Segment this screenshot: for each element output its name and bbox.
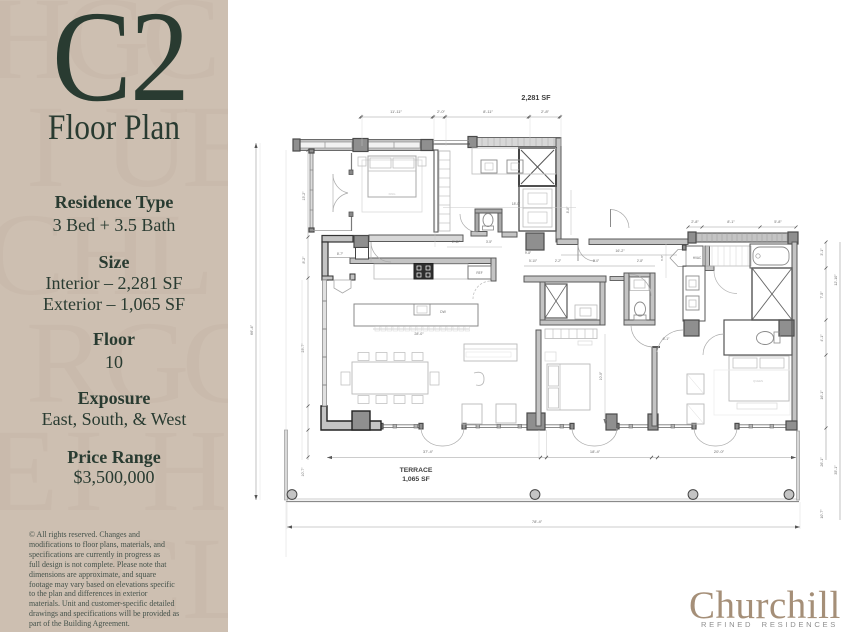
- svg-text:2′-8″: 2′-8″: [691, 220, 699, 224]
- svg-text:QUEEN: QUEEN: [753, 379, 763, 383]
- svg-text:23′-7″: 23′-7″: [301, 343, 305, 353]
- svg-text:12′-10″: 12′-10″: [834, 274, 838, 286]
- svg-text:78′-4″: 78′-4″: [532, 519, 543, 524]
- svg-text:6′-1″: 6′-1″: [663, 337, 671, 341]
- svg-text:7′-5″: 7′-5″: [820, 291, 824, 299]
- svg-text:35′-1″: 35′-1″: [834, 465, 838, 475]
- svg-text:5′-10″: 5′-10″: [529, 259, 538, 263]
- svg-text:2′-8″: 2′-8″: [541, 109, 550, 114]
- svg-text:TERRACE: TERRACE: [400, 467, 433, 474]
- svg-text:8′-11″: 8′-11″: [483, 109, 493, 114]
- svg-text:3′-1″: 3′-1″: [820, 248, 824, 256]
- svg-text:4′-1″: 4′-1″: [820, 334, 824, 342]
- svg-text:1,065 SF: 1,065 SF: [402, 476, 430, 483]
- svg-text:2,281 SF: 2,281 SF: [521, 93, 551, 102]
- svg-text:2′-0″: 2′-0″: [437, 109, 446, 114]
- svg-text:8′-7″: 8′-7″: [337, 252, 344, 256]
- svg-text:8′-1″: 8′-1″: [727, 220, 735, 224]
- svg-text:9′-8″: 9′-8″: [525, 251, 532, 255]
- svg-text:5′-8″: 5′-8″: [774, 220, 782, 224]
- svg-text:16′-2″: 16′-2″: [615, 249, 625, 253]
- svg-text:2′-2″: 2′-2″: [555, 259, 562, 263]
- svg-text:10′-9″: 10′-9″: [599, 371, 603, 380]
- svg-text:DW: DW: [440, 310, 446, 314]
- svg-text:10′-7″: 10′-7″: [301, 467, 305, 477]
- svg-text:20′-0″: 20′-0″: [714, 449, 725, 454]
- svg-text:26′-1″: 26′-1″: [820, 457, 824, 467]
- svg-text:66′-4″: 66′-4″: [249, 324, 254, 335]
- svg-text:8′-0″: 8′-0″: [593, 259, 600, 263]
- svg-text:2′-11″: 2′-11″: [452, 240, 461, 244]
- svg-text:6′-8″: 6′-8″: [660, 255, 664, 261]
- svg-text:37′-4″: 37′-4″: [423, 449, 434, 454]
- svg-text:KING: KING: [389, 192, 396, 196]
- svg-text:8′-2″: 8′-2″: [302, 256, 306, 264]
- svg-text:8′-8″: 8′-8″: [566, 206, 570, 213]
- svg-text:3′-5″: 3′-5″: [486, 240, 493, 244]
- svg-text:28′-0″: 28′-0″: [414, 332, 424, 336]
- svg-text:18′-4″: 18′-4″: [590, 449, 601, 454]
- svg-text:11′-11″: 11′-11″: [390, 109, 402, 114]
- svg-text:REF: REF: [476, 271, 482, 275]
- svg-text:13′-2″: 13′-2″: [302, 191, 306, 201]
- svg-text:HVAC: HVAC: [693, 256, 702, 260]
- svg-text:16′-1″: 16′-1″: [820, 390, 824, 400]
- svg-text:18′-0″: 18′-0″: [512, 202, 521, 206]
- svg-text:2′-8″: 2′-8″: [637, 259, 644, 263]
- svg-text:10′-7″: 10′-7″: [820, 509, 824, 519]
